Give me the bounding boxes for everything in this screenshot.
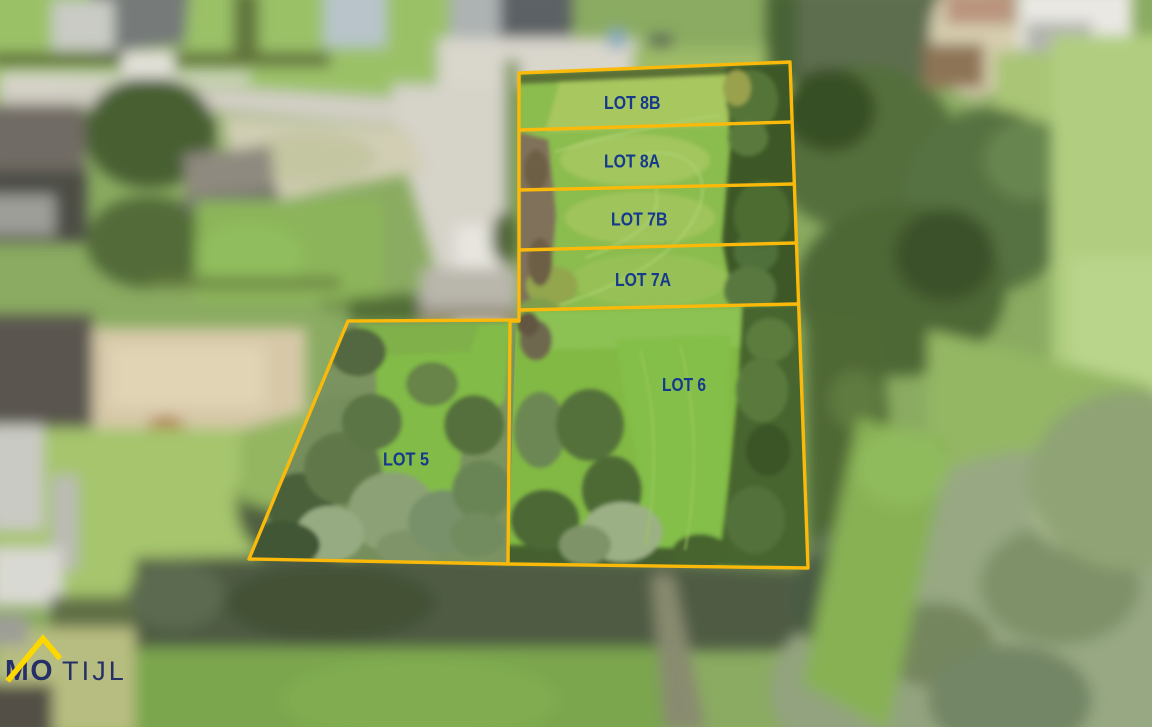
svg-text:LOT 5: LOT 5 [383,449,429,470]
svg-text:LOT 8B: LOT 8B [604,92,661,113]
svg-text:TIJL: TIJL [62,656,127,686]
svg-text:LOT 7B: LOT 7B [611,209,668,230]
svg-text:LOT 8A: LOT 8A [604,151,660,172]
svg-text:LOT 6: LOT 6 [662,374,706,395]
svg-text:LOT 7A: LOT 7A [615,269,671,290]
